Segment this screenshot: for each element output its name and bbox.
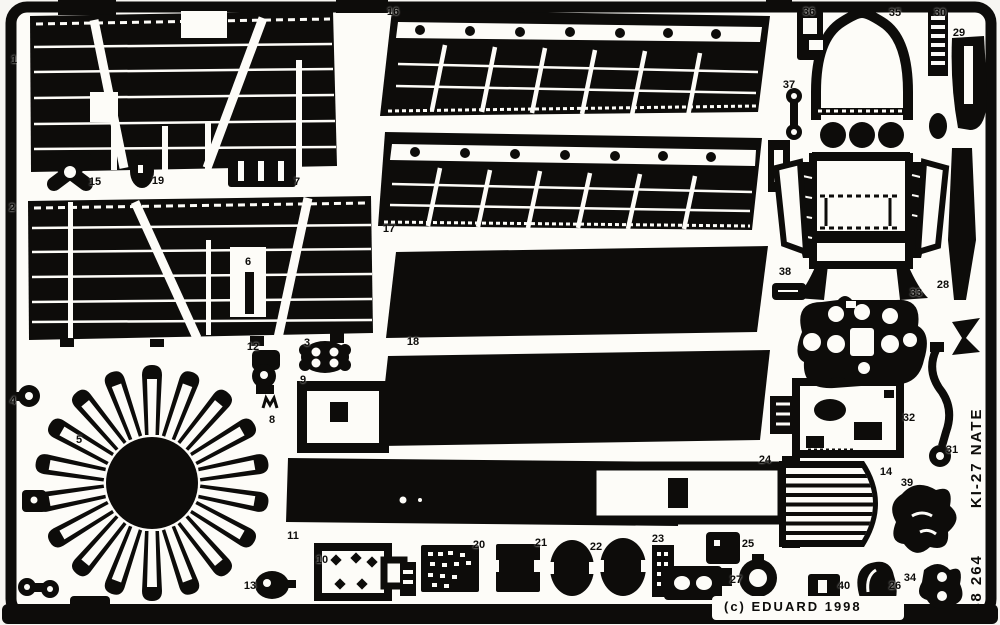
part-shape-left-bracket (22, 490, 46, 512)
part-shape-1 (30, 11, 337, 172)
photo-etch-fret-sheet: 1234567891011121314151617181920212223242… (0, 0, 1000, 625)
part-shape-36 (797, 10, 823, 60)
sheet-title: KI-27 NATE (968, 408, 985, 509)
part-shape-14 (779, 461, 886, 547)
part-shape-3 (299, 341, 351, 373)
part-shape-25 (706, 532, 740, 564)
sheet-code: 48 264 (968, 554, 985, 612)
side-code-text: 48 264KI-27 NATE (968, 408, 985, 612)
part-shape-30 (928, 10, 948, 76)
part-shape-15 (54, 160, 86, 184)
part-shape-21 (492, 544, 541, 592)
part-shape-7 (228, 155, 296, 187)
part-shape-20 (421, 545, 479, 592)
fret-artwork (0, 0, 1000, 625)
part-shape-17 (378, 132, 762, 230)
part-shape-2 (28, 196, 373, 347)
part-shape-38 (772, 283, 806, 300)
part-shape-10 (318, 547, 404, 597)
part-shape-33 (797, 296, 926, 388)
part-shape-small-clip (400, 562, 416, 596)
part-shape-16 (380, 10, 770, 116)
part-shape-19 (130, 154, 154, 188)
part-shape-9 (302, 386, 384, 448)
part-shape-6 (245, 272, 254, 314)
part-shape-24 (592, 466, 782, 520)
brand-text: (c) EDUARD 1998 (718, 598, 868, 615)
